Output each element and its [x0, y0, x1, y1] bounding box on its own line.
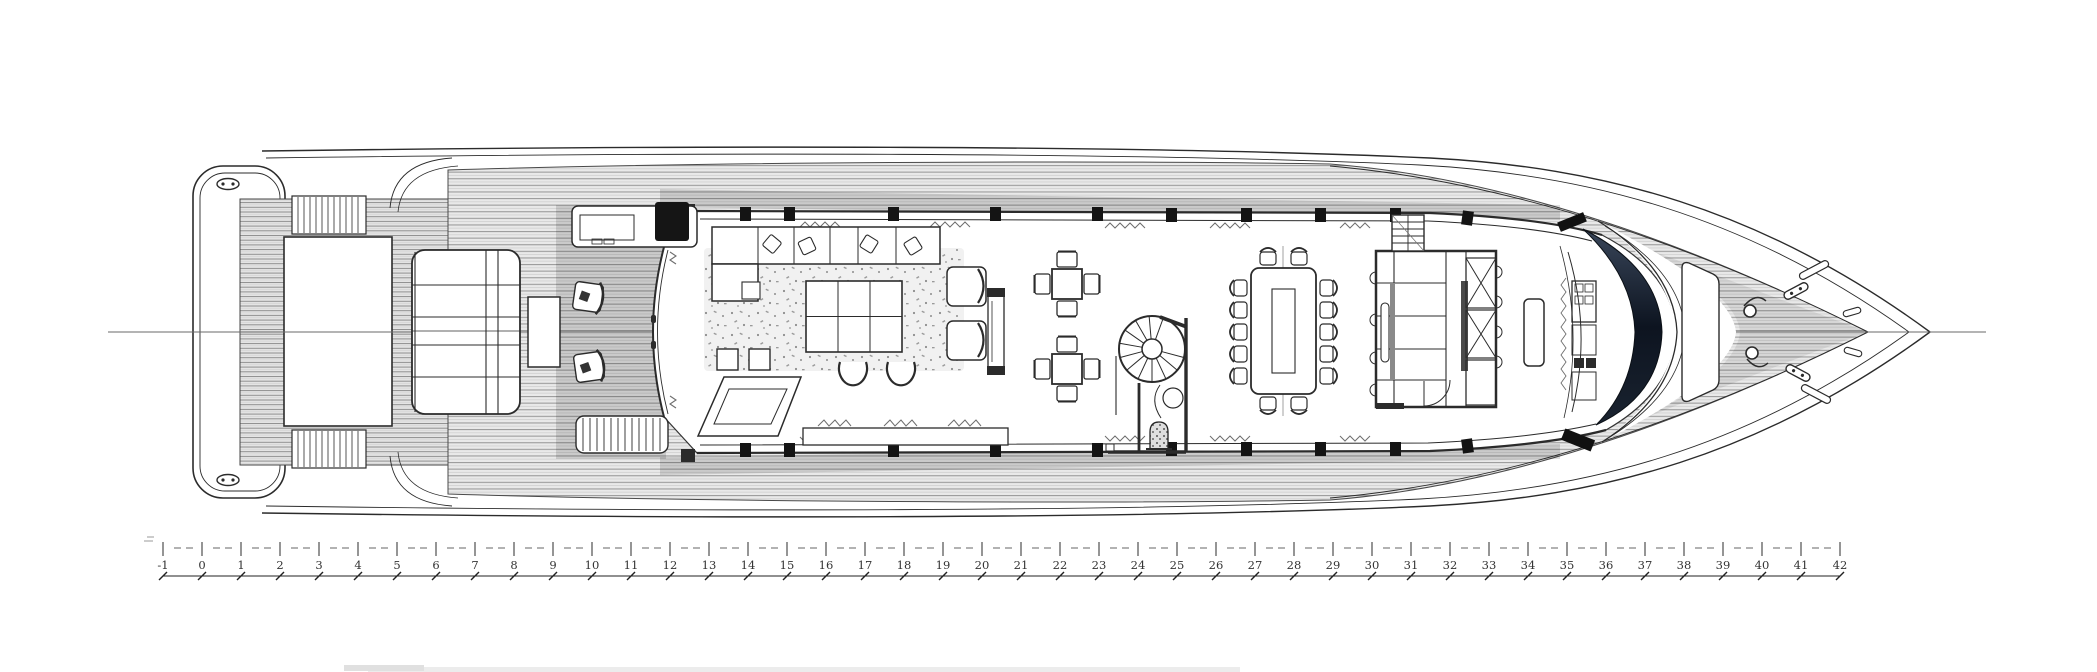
ruler-label: 16: [819, 558, 834, 572]
sofa-side-table: [742, 282, 760, 299]
aft-deck-chair-top: [572, 279, 605, 315]
ruler-label: 1: [237, 558, 244, 572]
ruler-label: 15: [780, 558, 795, 572]
ruler-label: 19: [936, 558, 951, 572]
ruler-label: 10: [585, 558, 600, 572]
ruler-label: 37: [1638, 558, 1653, 572]
salon-chair-left: [839, 362, 867, 385]
door-handle-top: [651, 315, 656, 323]
island-counter: [1524, 299, 1544, 366]
ruler-label: 36: [1599, 558, 1614, 572]
stern-cleat-top: [217, 179, 239, 190]
ruler-label: 27: [1248, 558, 1263, 572]
galley-sink: [1381, 303, 1389, 362]
ruler-label: 0: [198, 558, 205, 572]
cropped-sheet-edge: [368, 667, 1240, 672]
salon-armchair-top: [947, 267, 986, 306]
salon-side-table-1: [717, 349, 738, 370]
door-stop: [1106, 444, 1114, 451]
ruler-label: 29: [1326, 558, 1341, 572]
ruler-label: 13: [702, 558, 717, 572]
cropped-sheet-edge-left: [344, 665, 424, 671]
aft-deck-chair-bottom: [573, 349, 606, 385]
ruler-label: 38: [1677, 558, 1692, 572]
stern-stairs-starboard: [292, 430, 366, 468]
salon-chair-right: [887, 362, 915, 385]
ruler-label: 40: [1755, 558, 1770, 572]
ruler-label: 7: [471, 558, 478, 572]
aft-coffee-table: [528, 297, 560, 367]
game-table-surface: [1052, 354, 1082, 384]
ruler-label: 18: [897, 558, 912, 572]
ruler-label: 41: [1794, 558, 1809, 572]
tv-sideboard: [987, 288, 1005, 375]
ruler-label: 2: [276, 558, 283, 572]
aft-side-stairs-down: [576, 416, 668, 453]
grill-unit: [655, 202, 689, 241]
bow-panel: [1682, 263, 1719, 402]
wall-corner-block-bottom: [681, 449, 695, 462]
counter-edge: [1390, 283, 1395, 380]
ruler-label: -1: [157, 558, 168, 572]
ruler-label: 9: [549, 558, 556, 572]
ruler-label: 8: [510, 558, 517, 572]
ruler-label: 28: [1287, 558, 1302, 572]
ruler-label: 12: [663, 558, 678, 572]
salon-side-table-2: [749, 349, 770, 370]
salon-coffee-table: [806, 281, 902, 352]
ruler-label: 33: [1482, 558, 1497, 572]
stern-cleat-bottom: [217, 475, 239, 486]
ruler-label: 5: [393, 558, 400, 572]
yacht-deck-plan: -101234567891011121314151617181920212223…: [0, 0, 2097, 672]
dining-table-runner: [1272, 289, 1295, 373]
ruler-label: 22: [1053, 558, 1068, 572]
ruler-label: 39: [1716, 558, 1731, 572]
ruler-label: 20: [975, 558, 990, 572]
aft-console: [572, 202, 697, 247]
ruler-label: 11: [624, 558, 639, 572]
ruler-label: 31: [1404, 558, 1419, 572]
ruler-label: 26: [1209, 558, 1224, 572]
ruler-label: 42: [1833, 558, 1848, 572]
ruler-label: 23: [1092, 558, 1107, 572]
ruler-label: 4: [354, 558, 361, 572]
door-handle-bottom: [651, 341, 656, 349]
ruler-label: 14: [741, 558, 756, 572]
ruler-label: 30: [1365, 558, 1380, 572]
ruler-label: 17: [858, 558, 873, 572]
spiral-stair-hub: [1142, 339, 1162, 359]
ruler-label: 32: [1443, 558, 1458, 572]
ruler-label: 6: [432, 558, 439, 572]
ruler-label: 34: [1521, 558, 1536, 572]
crew-stairs: [1392, 215, 1424, 251]
ruler-label: 3: [315, 558, 322, 572]
aft-sunpad-settee: [412, 250, 520, 414]
stern-stairs-port: [292, 196, 366, 234]
yacht-deck-plan-canvas: -101234567891011121314151617181920212223…: [0, 0, 2097, 672]
ruler-label: 21: [1014, 558, 1029, 572]
salon-armchair-bottom: [947, 321, 986, 360]
ruler-label: 25: [1170, 558, 1185, 572]
galley-threshold: [1376, 403, 1404, 409]
ruler-label: 35: [1560, 558, 1575, 572]
ruler-label: 24: [1131, 558, 1146, 572]
game-table-surface: [1052, 269, 1082, 299]
